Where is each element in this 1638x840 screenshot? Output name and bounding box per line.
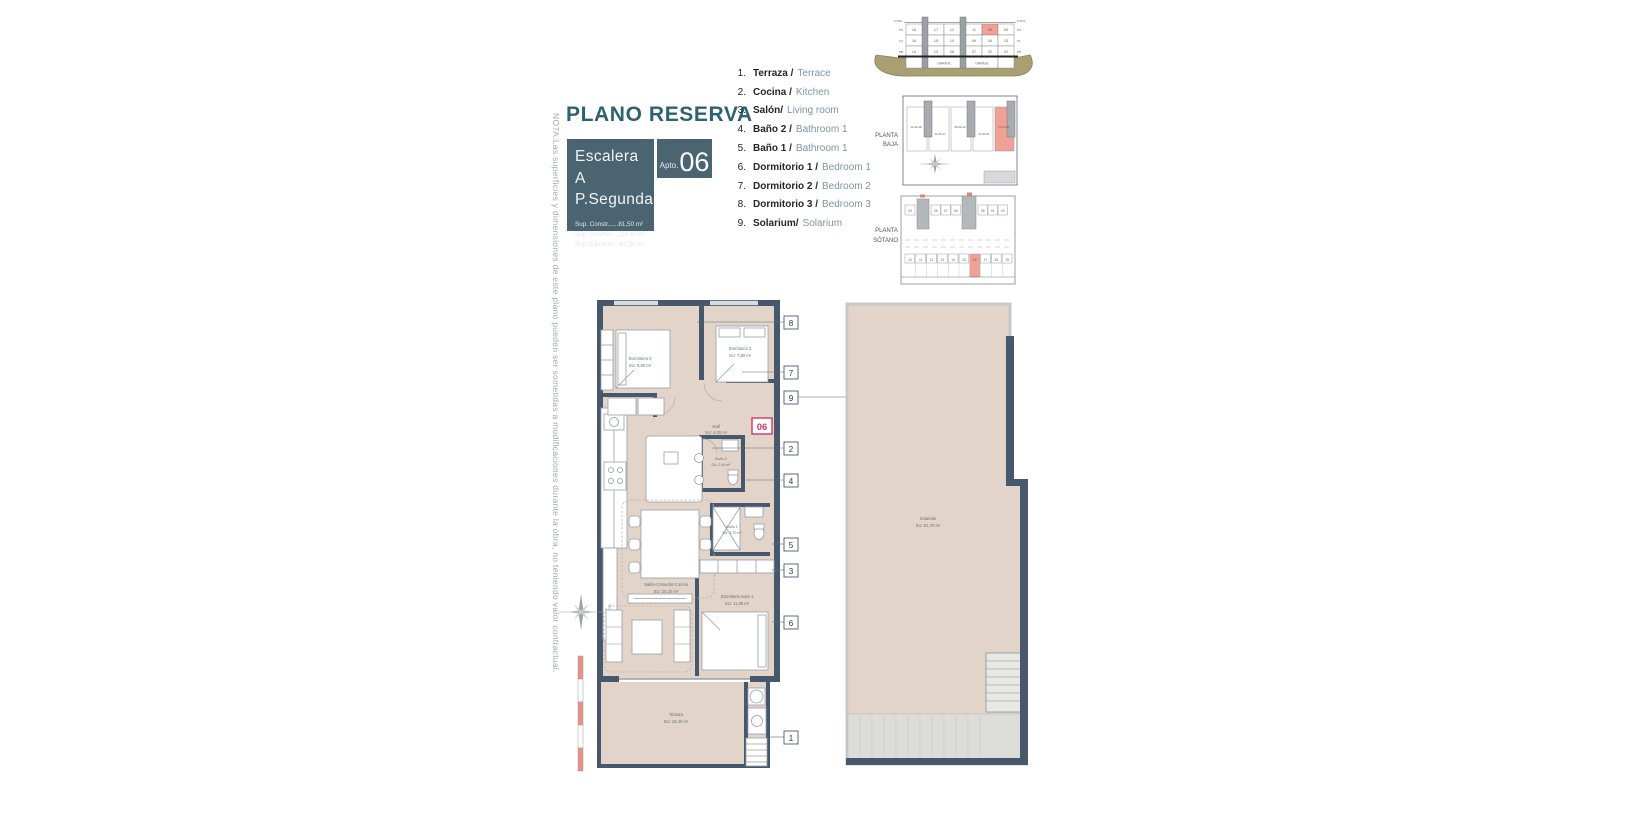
svg-text:Dormitorio suite 1: Dormitorio suite 1: [721, 594, 754, 599]
svg-text:03: 03: [1001, 209, 1005, 213]
svg-text:P1: P1: [1017, 39, 1021, 43]
svg-text:SU: 20,20 m²: SU: 20,20 m²: [654, 589, 679, 594]
svg-text:Dormitorio 3: Dormitorio 3: [629, 356, 652, 361]
svg-text:04: 04: [988, 39, 992, 43]
compass-icon: [559, 594, 603, 630]
svg-text:SÓTANO: SÓTANO: [873, 237, 898, 244]
svg-text:SU: 81,70 m²: SU: 81,70 m²: [916, 523, 941, 528]
escalera-label: Escalera A: [575, 146, 646, 189]
apartment-badge: 06: [752, 418, 772, 434]
legend-item: 8.Dormitorio 3 /Bedroom 3: [731, 196, 871, 215]
stair-core: [962, 196, 976, 229]
apto-label: Apto.: [660, 161, 679, 170]
svg-text:8: 8: [789, 319, 794, 328]
sup-terrazas: Sup.Terrazas.....18,40 m²: [575, 230, 646, 240]
legend-item: 7.Dormitorio 2 /Bedroom 2: [731, 177, 871, 196]
svg-text:16: 16: [912, 39, 916, 43]
legend-item: 4.Baño 2 /Bathroom 1: [731, 120, 871, 139]
svg-text:11: 11: [919, 258, 923, 262]
building-section-diagram: 181712110605 161510090403 141308070201 G…: [875, 17, 1032, 76]
svg-text:08: 08: [950, 50, 954, 54]
legend-item: 6.Dormitorio 1 /Bedroom 1: [731, 158, 871, 177]
stair-core: [922, 17, 928, 68]
svg-text:P.SOL: P.SOL: [895, 19, 904, 23]
svg-text:14: 14: [951, 258, 955, 262]
svg-text:2: 2: [789, 445, 794, 454]
svg-text:SU: 4,00 m²: SU: 4,00 m²: [705, 430, 728, 435]
svg-text:SU: 2,40 m²: SU: 2,40 m²: [711, 463, 731, 467]
svg-text:17: 17: [984, 258, 988, 262]
svg-text:SU: 3,70 m²: SU: 3,70 m²: [722, 531, 742, 535]
planta-sotano-diagram: PLANTA SÓTANO 09 08 07 06 05 04 03: [873, 193, 1015, 285]
svg-text:PS: PS: [1017, 28, 1021, 32]
svg-text:PB: PB: [1017, 50, 1021, 54]
svg-text:11: 11: [972, 28, 976, 32]
solarium-plan: Solarium SU: 81,70 m²: [846, 304, 1028, 765]
svg-text:12: 12: [930, 258, 934, 262]
stair-core: [967, 101, 975, 137]
planta-baja-diagram: PLANTA BAJA 14-16-18 13-15-17 08-10-12 0…: [875, 96, 1017, 185]
svg-text:4: 4: [789, 477, 794, 486]
svg-text:08: 08: [934, 209, 938, 213]
svg-text:02: 02: [988, 50, 992, 54]
site-diagrams: 181712110605 161510090403 141308070201 G…: [860, 8, 1045, 293]
svg-text:07: 07: [944, 209, 948, 213]
kitchen-island: [646, 436, 704, 502]
svg-text:SU: 18,40 m²: SU: 18,40 m²: [664, 719, 689, 724]
svg-text:19: 19: [1005, 258, 1009, 262]
sup-constr: Sup. Constr......81,50 m²: [575, 220, 646, 230]
svg-text:16: 16: [973, 258, 977, 262]
stair-floor-block: Escalera A P.Segunda Sup. Constr......81…: [567, 139, 654, 231]
svg-text:06: 06: [954, 209, 958, 213]
floor-plan: ALACENA: [555, 295, 1045, 785]
svg-text:05: 05: [1004, 28, 1008, 32]
svg-text:Solarium: Solarium: [920, 516, 937, 521]
stair-core: [917, 199, 929, 229]
planta-label: P.Segunda: [575, 189, 646, 211]
room-legend: 1.Terraza /Terrace 2.Cocina /Kitchen 3.S…: [731, 64, 871, 233]
svg-text:BAJA: BAJA: [883, 142, 898, 148]
svg-text:9: 9: [789, 394, 794, 403]
legend-item: 1.Terraza /Terrace: [731, 64, 871, 83]
svg-text:P.SOL: P.SOL: [1017, 19, 1026, 23]
stair-core: [924, 101, 932, 137]
svg-text:06: 06: [757, 422, 768, 433]
svg-text:5: 5: [789, 541, 794, 550]
svg-text:08-10-12: 08-10-12: [954, 125, 966, 129]
svg-text:07-09-11: 07-09-11: [979, 132, 990, 136]
legend-item: 3.Salón/Living room: [731, 102, 871, 121]
apartment-number-block: Apto. 06: [657, 139, 712, 178]
svg-text:07: 07: [972, 50, 976, 54]
svg-text:18: 18: [912, 28, 916, 32]
svg-text:14: 14: [912, 50, 916, 54]
svg-text:18: 18: [995, 258, 999, 262]
svg-text:PLANTA: PLANTA: [875, 133, 898, 139]
svg-text:3: 3: [789, 567, 794, 576]
svg-text:GARAJE: GARAJE: [937, 62, 951, 66]
terrace-fixtures: [746, 688, 767, 766]
sup-solarium: Sup.Solarium....82,90 m²: [575, 240, 646, 250]
svg-text:10: 10: [950, 39, 954, 43]
svg-text:17: 17: [934, 28, 938, 32]
svg-text:Baño 2: Baño 2: [715, 457, 726, 461]
svg-text:14-16-18: 14-16-18: [910, 125, 922, 129]
svg-text:15: 15: [934, 39, 938, 43]
svg-text:10: 10: [908, 258, 912, 262]
svg-text:09: 09: [908, 209, 912, 213]
svg-text:02-04-06: 02-04-06: [998, 125, 1010, 129]
legend-item: 5.Baño 1 /Bathroom 1: [731, 139, 871, 158]
svg-text:04: 04: [991, 209, 995, 213]
svg-text:P1: P1: [899, 39, 903, 43]
svg-text:PB: PB: [899, 50, 903, 54]
callout-numbers: 8 7 9 2 4 5 3 6 1: [784, 316, 798, 744]
pool: [984, 171, 1015, 183]
svg-text:12: 12: [950, 28, 954, 32]
apto-number: 06: [679, 151, 709, 174]
svg-text:06: 06: [988, 28, 992, 32]
stair-core: [1007, 101, 1015, 137]
legend-item: 9.Solarium/Solarium: [731, 214, 871, 233]
svg-text:PS: PS: [899, 28, 903, 32]
svg-text:SU: 7,50 m²: SU: 7,50 m²: [729, 353, 752, 358]
svg-text:13: 13: [941, 258, 945, 262]
svg-text:15: 15: [962, 258, 966, 262]
svg-text:SU: 9,60 m²: SU: 9,60 m²: [629, 363, 652, 368]
svg-text:03: 03: [1004, 39, 1008, 43]
legend-item: 2.Cocina /Kitchen: [731, 83, 871, 102]
svg-text:PLANTA: PLANTA: [875, 228, 898, 234]
svg-text:SU: 11,30 m²: SU: 11,30 m²: [725, 601, 750, 606]
svg-text:7: 7: [789, 369, 794, 378]
page-title: PLANO RESERVA: [566, 103, 753, 127]
svg-text:GARAJE: GARAJE: [975, 62, 989, 66]
scale-bar: [578, 656, 583, 771]
stair-core: [960, 17, 966, 68]
svg-text:6: 6: [789, 619, 794, 628]
svg-text:01: 01: [1004, 50, 1008, 54]
solarium-stairs: [986, 653, 1022, 712]
svg-text:09: 09: [972, 39, 976, 43]
svg-text:Baño 1: Baño 1: [726, 525, 737, 529]
svg-text:13-15-17: 13-15-17: [934, 132, 946, 136]
svg-text:1: 1: [789, 734, 794, 743]
svg-text:Salón-Comedor-Cocina: Salón-Comedor-Cocina: [644, 582, 688, 587]
plan-sheet: NOTA:Las superficies y dimensiones de es…: [0, 0, 1638, 840]
svg-text:Terraza: Terraza: [669, 712, 684, 717]
svg-text:Hall: Hall: [712, 424, 719, 429]
svg-text:Dormitorio 2: Dormitorio 2: [729, 346, 752, 351]
svg-text:05: 05: [981, 209, 985, 213]
svg-text:13: 13: [934, 50, 938, 54]
